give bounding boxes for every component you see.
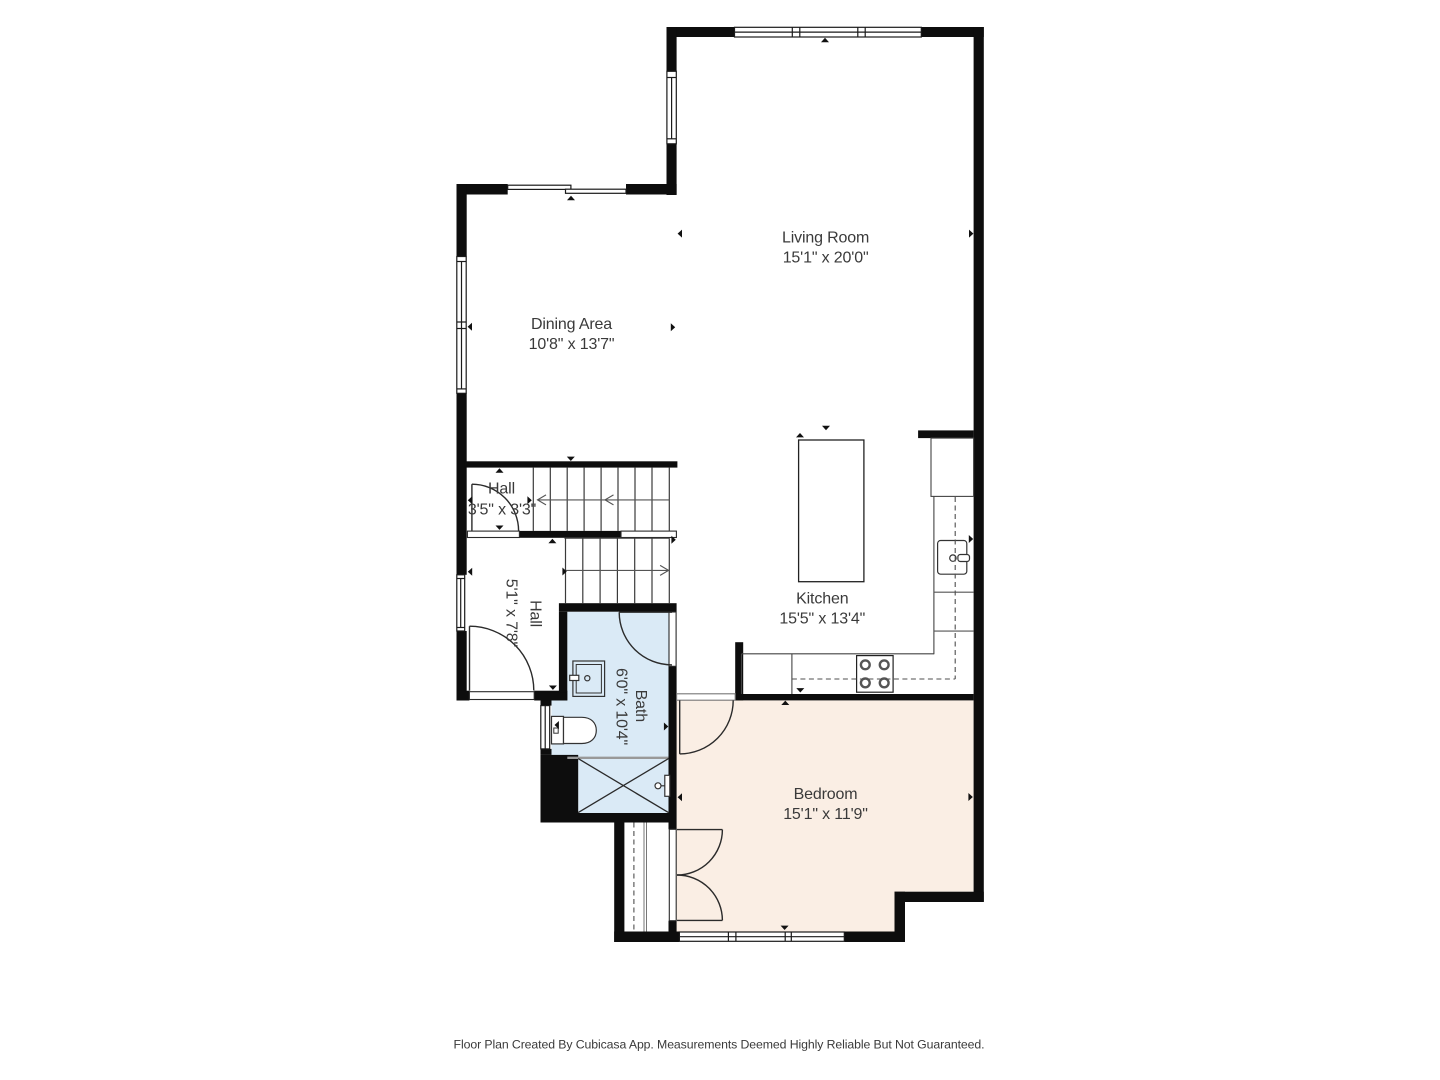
svg-text:6'0" x 10'4": 6'0" x 10'4"	[612, 668, 629, 745]
svg-text:Bedroom: Bedroom	[794, 786, 858, 803]
svg-text:Hall: Hall	[526, 600, 543, 627]
svg-text:15'1" x 11'9": 15'1" x 11'9"	[783, 806, 868, 823]
svg-text:15'1" x 20'0": 15'1" x 20'0"	[783, 250, 869, 267]
svg-text:5'1" x 7'8": 5'1" x 7'8"	[502, 579, 519, 647]
svg-text:Living Room: Living Room	[782, 230, 869, 247]
svg-text:15'5" x 13'4": 15'5" x 13'4"	[779, 611, 865, 628]
svg-text:Floor Plan Created By Cubicasa: Floor Plan Created By Cubicasa App. Meas…	[454, 1038, 985, 1052]
svg-text:Bath: Bath	[632, 690, 649, 722]
svg-text:Kitchen: Kitchen	[796, 591, 848, 608]
svg-text:10'8" x 13'7": 10'8" x 13'7"	[529, 336, 615, 353]
svg-text:Hall: Hall	[488, 480, 515, 497]
svg-text:3'5" x 3'3": 3'5" x 3'3"	[468, 502, 536, 519]
svg-text:Dining Area: Dining Area	[531, 316, 612, 333]
